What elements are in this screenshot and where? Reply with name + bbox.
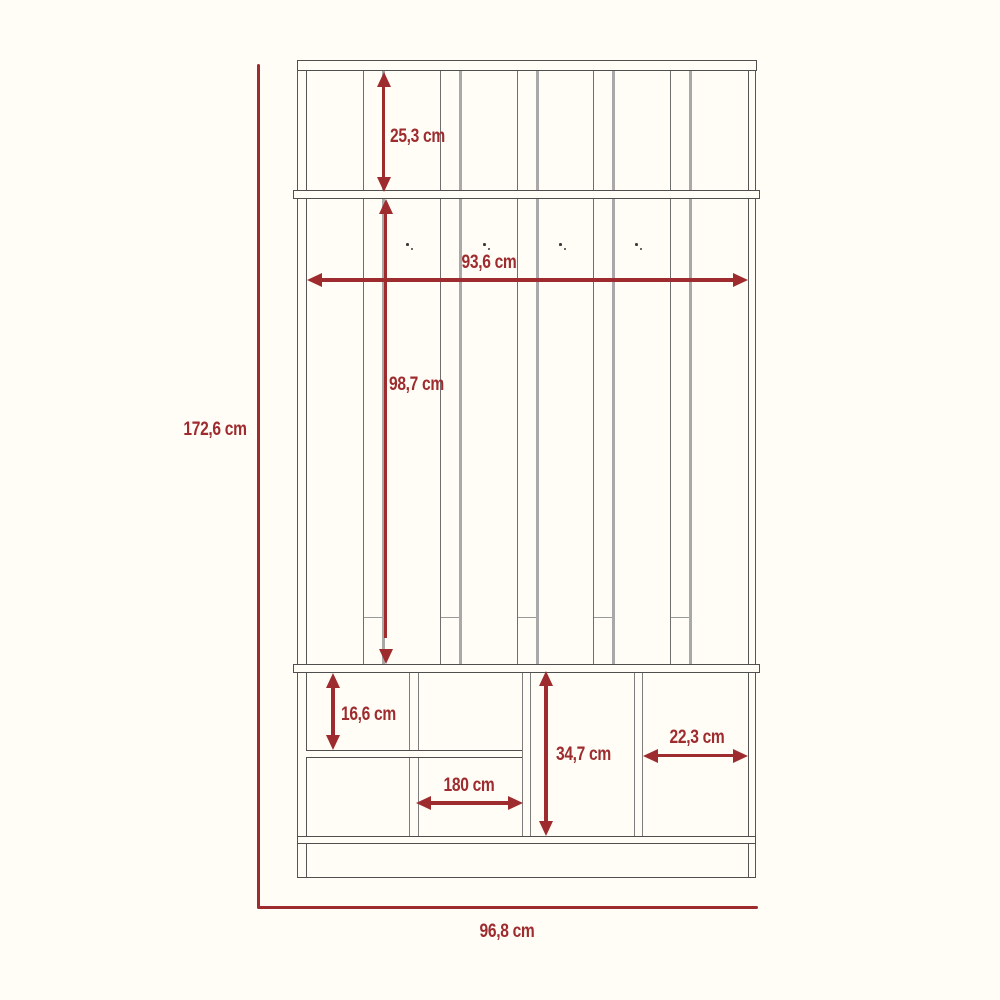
arrowhead-down-icon: [326, 735, 340, 750]
right-cubby-width-label: 22,3 cm: [660, 727, 734, 748]
overall-height-extent-line: [257, 64, 260, 908]
back-slat-5: [670, 199, 692, 664]
top-section-height-line: [382, 84, 385, 180]
hook-dot: [559, 243, 562, 246]
top-slat-4: [593, 71, 615, 190]
center-cubby-width-line: [428, 801, 511, 804]
top-cap-panel: [297, 60, 757, 71]
cubby-divider-3: [634, 673, 644, 837]
interior-width-line: [319, 278, 736, 281]
dimension-diagram: 172,6 cm 96,8 cm 25,3 cm 98,7 cm 93,6 cm…: [0, 0, 1000, 1000]
upper-cubby-height-line: [331, 685, 334, 738]
hook-dot: [635, 243, 638, 246]
cubby-mid-shelf: [306, 750, 522, 758]
top-slat-5: [670, 71, 692, 190]
lower-section-height-line: [544, 683, 547, 824]
hook-dot: [483, 243, 486, 246]
hook-dot: [640, 248, 643, 251]
slat-joint-2: [441, 617, 458, 618]
bottom-shelf: [297, 836, 756, 844]
base-bottom-edge: [297, 877, 756, 879]
slat-joint-1: [364, 617, 381, 618]
right-cubby-width-line: [655, 754, 736, 757]
back-slat-1: [363, 199, 385, 664]
arrowhead-down-icon: [377, 177, 391, 192]
cubby-divider-2: [522, 673, 532, 837]
hook-dot: [488, 248, 491, 251]
coat-hook-1-icon: [406, 243, 416, 253]
overall-height-label: 172,6 cm: [177, 419, 252, 440]
coat-hook-4-icon: [635, 243, 645, 253]
back-slat-4: [593, 199, 615, 664]
hook-dot: [564, 248, 567, 251]
slat-joint-4: [594, 617, 611, 618]
arrowhead-right-icon: [733, 273, 748, 287]
overall-width-extent-line: [257, 906, 758, 909]
middle-section-height-label: 98,7 cm: [389, 374, 444, 395]
slat-joint-3: [518, 617, 535, 618]
arrowhead-down-icon: [539, 821, 553, 836]
top-section-height-label: 25,3 cm: [390, 126, 445, 147]
hook-dot: [406, 243, 409, 246]
arrowhead-down-icon: [379, 649, 393, 664]
upper-shelf-rail: [293, 190, 760, 199]
center-cubby-width-label: 180 cm: [432, 775, 506, 796]
coat-hook-3-icon: [559, 243, 569, 253]
lower-section-height-label: 34,7 cm: [556, 744, 611, 765]
hook-dot: [411, 248, 414, 251]
top-slat-3: [517, 71, 539, 190]
overall-width-label: 96,8 cm: [469, 921, 544, 942]
arrowhead-right-icon: [733, 749, 748, 763]
interior-width-label: 93,6 cm: [452, 252, 526, 273]
upper-cubby-height-label: 16,6 cm: [341, 704, 396, 725]
slat-joint-5: [671, 617, 688, 618]
middle-section-height-line: [384, 211, 387, 638]
arrowhead-right-icon: [508, 796, 523, 810]
